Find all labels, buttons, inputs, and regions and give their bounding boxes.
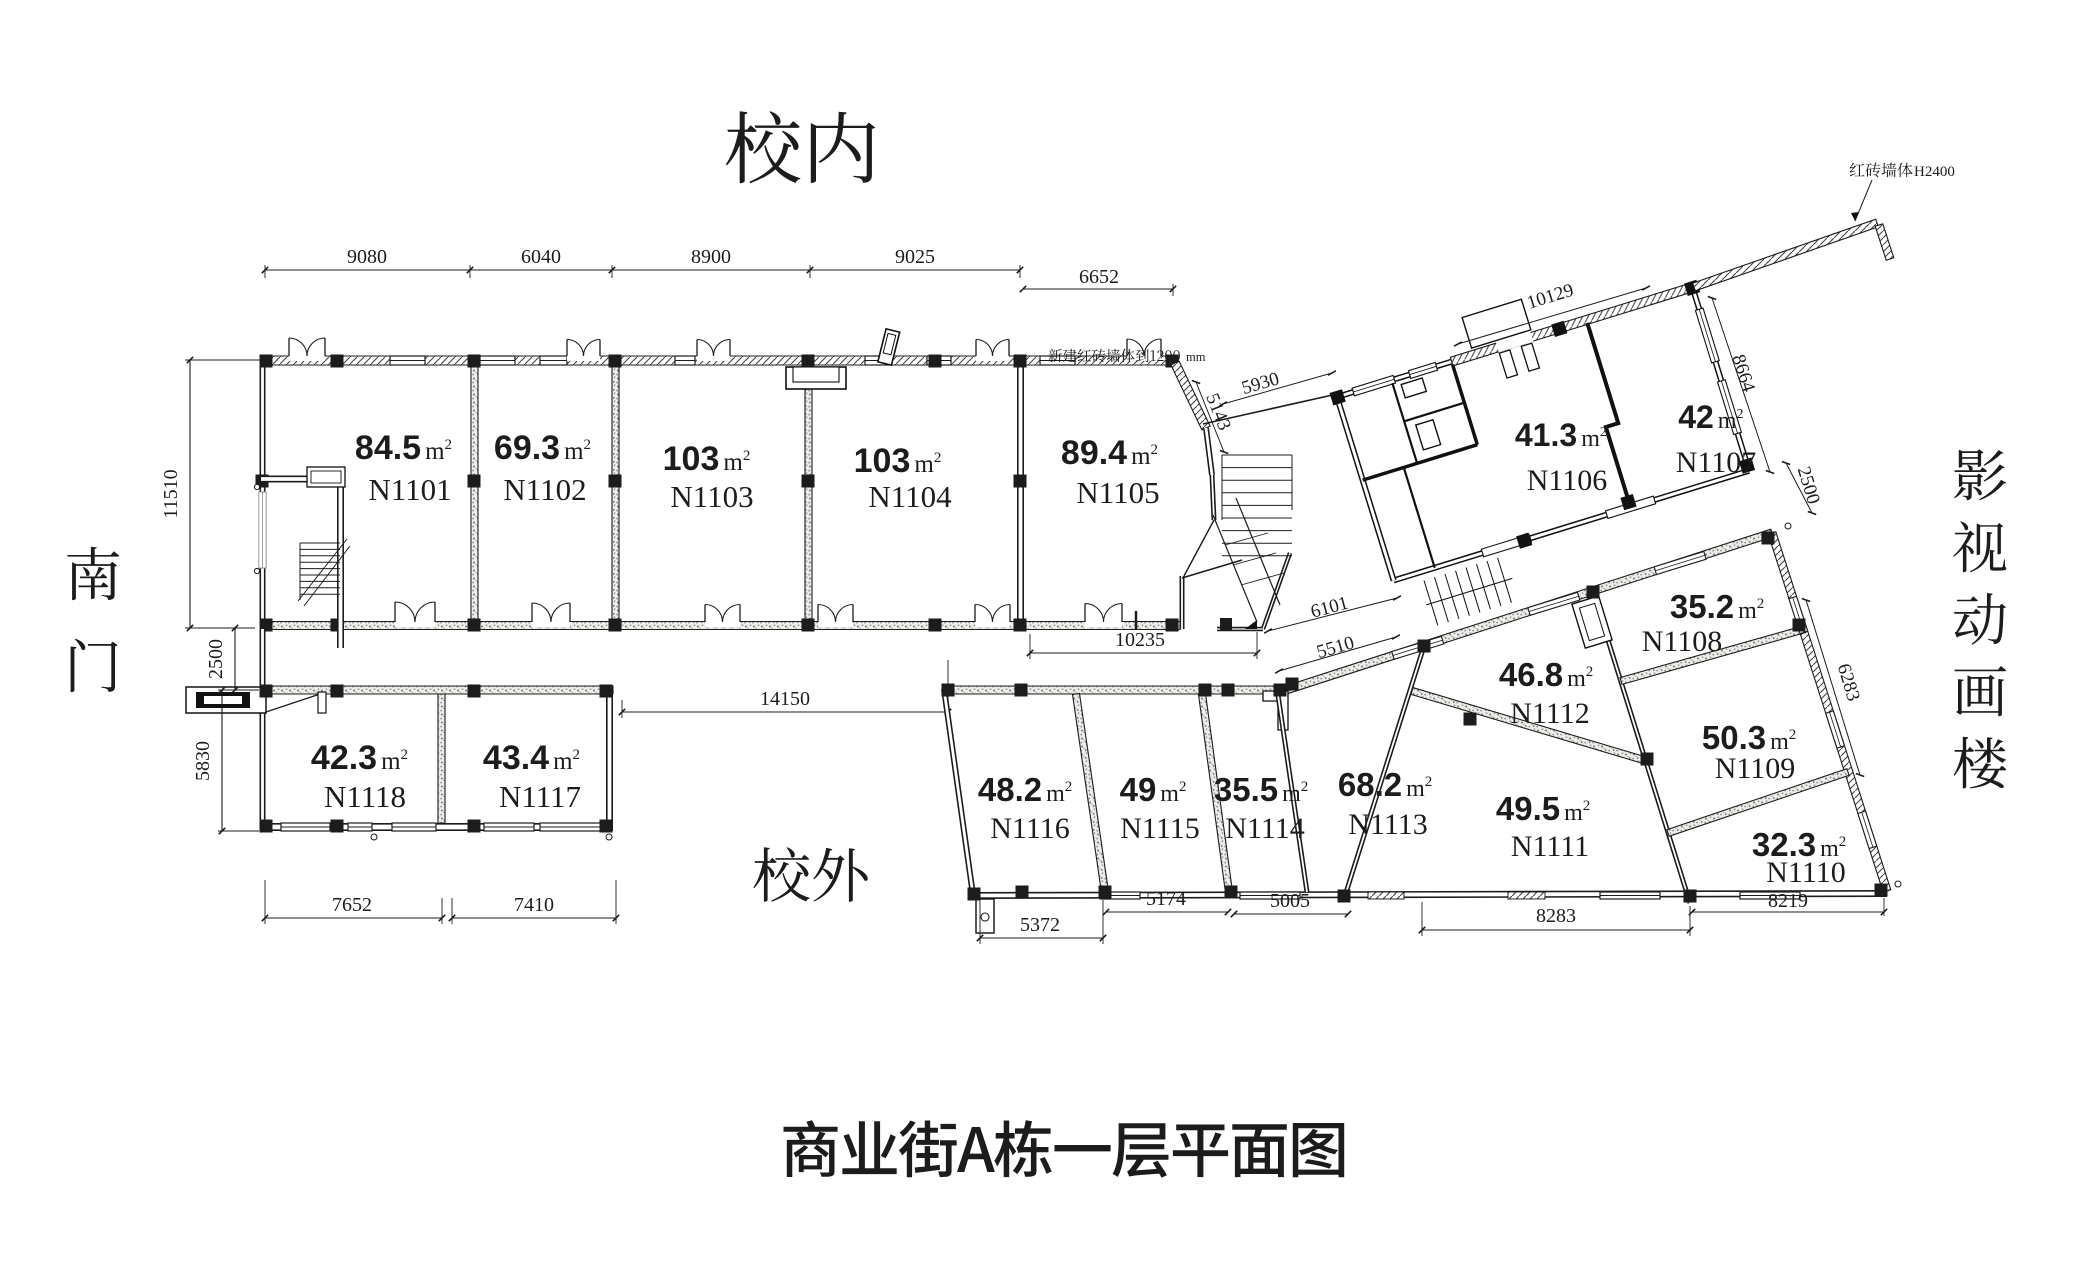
svg-text:N1101: N1101 [368,472,451,507]
svg-text:48.2: 48.2 [978,771,1042,808]
svg-text:mm: mm [1186,350,1206,364]
svg-text:5830: 5830 [192,741,214,781]
svg-text:N1118: N1118 [324,779,406,814]
svg-text:49: 49 [1120,771,1157,808]
svg-text:N1102: N1102 [503,472,586,507]
svg-text:N1117: N1117 [499,779,581,814]
svg-text:2500: 2500 [205,639,227,679]
svg-text:N1107: N1107 [1676,446,1757,479]
svg-text:N1104: N1104 [868,479,952,514]
svg-text:50.3: 50.3 [1702,719,1766,756]
svg-text:N1116: N1116 [990,812,1069,845]
svg-text:69.3: 69.3 [494,429,560,467]
svg-text:42: 42 [1678,399,1714,435]
svg-text:10235: 10235 [1115,629,1165,651]
svg-text:49.5: 49.5 [1496,790,1560,827]
svg-text:42.3: 42.3 [311,739,377,777]
svg-text:N1110: N1110 [1766,856,1845,889]
svg-text:H2400: H2400 [1914,164,1955,180]
svg-text:43.4: 43.4 [483,739,549,777]
svg-text:6652: 6652 [1079,266,1119,288]
svg-text:103: 103 [854,442,911,480]
svg-text:N1113: N1113 [1348,808,1427,841]
svg-text:N1112: N1112 [1510,697,1589,730]
svg-text:89.4: 89.4 [1061,434,1127,472]
svg-text:N1106: N1106 [1527,464,1608,497]
svg-text:8219: 8219 [1768,890,1808,912]
svg-text:41.3: 41.3 [1515,417,1577,453]
svg-text:5005: 5005 [1270,890,1310,912]
svg-text:68.2: 68.2 [1338,766,1402,803]
svg-text:7410: 7410 [514,894,554,916]
svg-text:9025: 9025 [895,246,935,268]
svg-text:N1114: N1114 [1225,812,1304,845]
svg-text:84.5: 84.5 [355,429,421,467]
svg-text:9080: 9080 [347,246,387,268]
svg-text:N1115: N1115 [1120,812,1199,845]
svg-text:N1103: N1103 [670,479,753,514]
svg-text:11510: 11510 [160,469,182,518]
svg-text:N1109: N1109 [1715,752,1796,785]
svg-text:5174: 5174 [1146,888,1186,910]
svg-text:35.5: 35.5 [1214,771,1278,808]
svg-text:8283: 8283 [1536,905,1576,927]
svg-text:103: 103 [663,440,720,478]
svg-text:N1108: N1108 [1642,625,1723,658]
svg-text:N1111: N1111 [1511,830,1589,863]
svg-text:7652: 7652 [332,894,372,916]
svg-text:46.8: 46.8 [1499,656,1563,693]
svg-text:8900: 8900 [691,246,731,268]
svg-text:6040: 6040 [521,246,561,268]
svg-text:14150: 14150 [760,688,810,710]
svg-text:5372: 5372 [1020,914,1060,936]
svg-text:N1105: N1105 [1076,475,1159,510]
svg-text:35.2: 35.2 [1670,588,1734,625]
